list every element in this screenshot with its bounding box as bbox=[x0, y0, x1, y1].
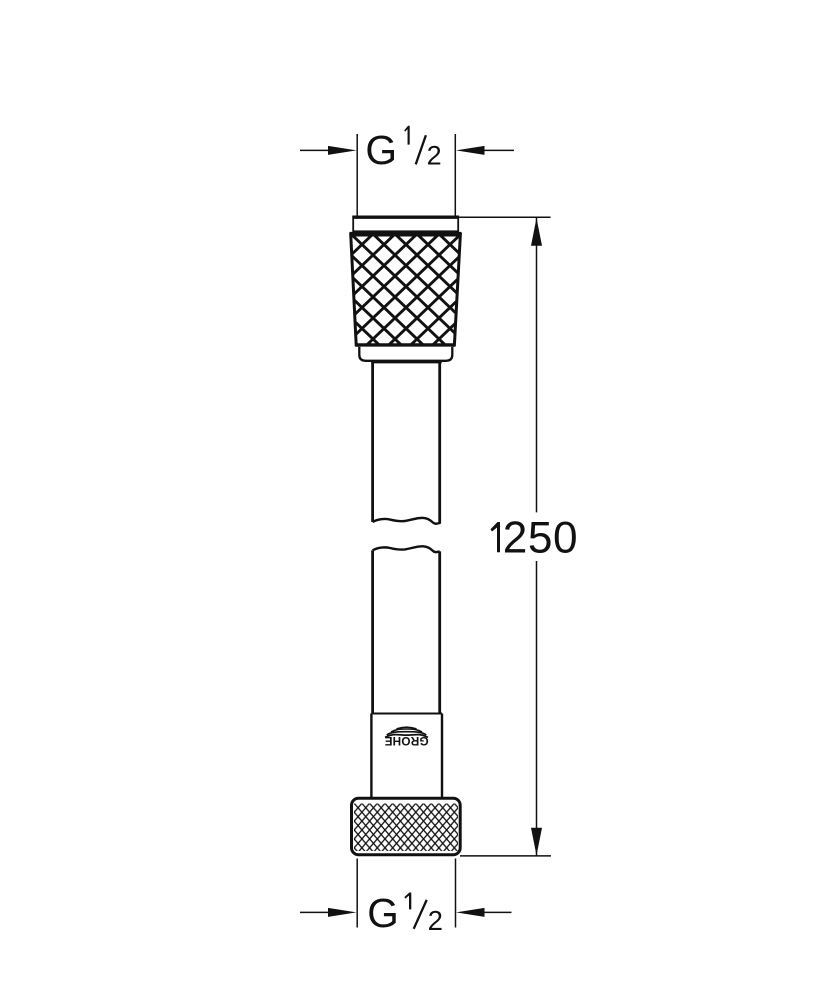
svg-text:G: G bbox=[365, 127, 397, 173]
svg-text:250: 250 bbox=[503, 513, 578, 562]
svg-text:G: G bbox=[367, 890, 399, 936]
svg-text:GROHE: GROHE bbox=[384, 734, 428, 748]
svg-text:2: 2 bbox=[428, 905, 443, 936]
svg-text:2: 2 bbox=[427, 140, 442, 170]
